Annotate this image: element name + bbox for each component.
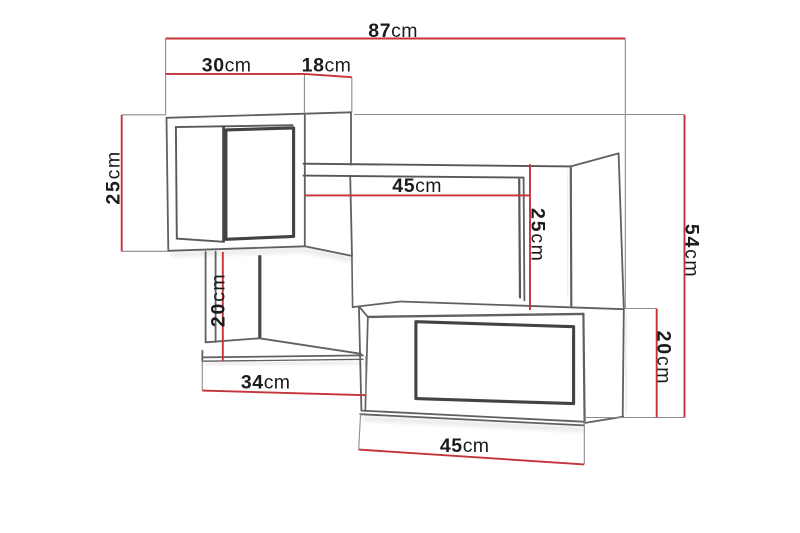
svg-text:30cm: 30cm [202,55,251,77]
svg-text:34cm: 34cm [241,371,290,393]
svg-text:18cm: 18cm [302,55,351,77]
svg-text:45cm: 45cm [392,175,441,197]
svg-text:54cm: 54cm [680,224,702,278]
svg-text:20cm: 20cm [208,273,230,327]
svg-text:87cm: 87cm [368,20,417,42]
svg-text:20cm: 20cm [653,331,675,385]
svg-text:25cm: 25cm [527,208,549,262]
svg-text:25cm: 25cm [103,150,125,204]
svg-text:45cm: 45cm [440,435,489,457]
